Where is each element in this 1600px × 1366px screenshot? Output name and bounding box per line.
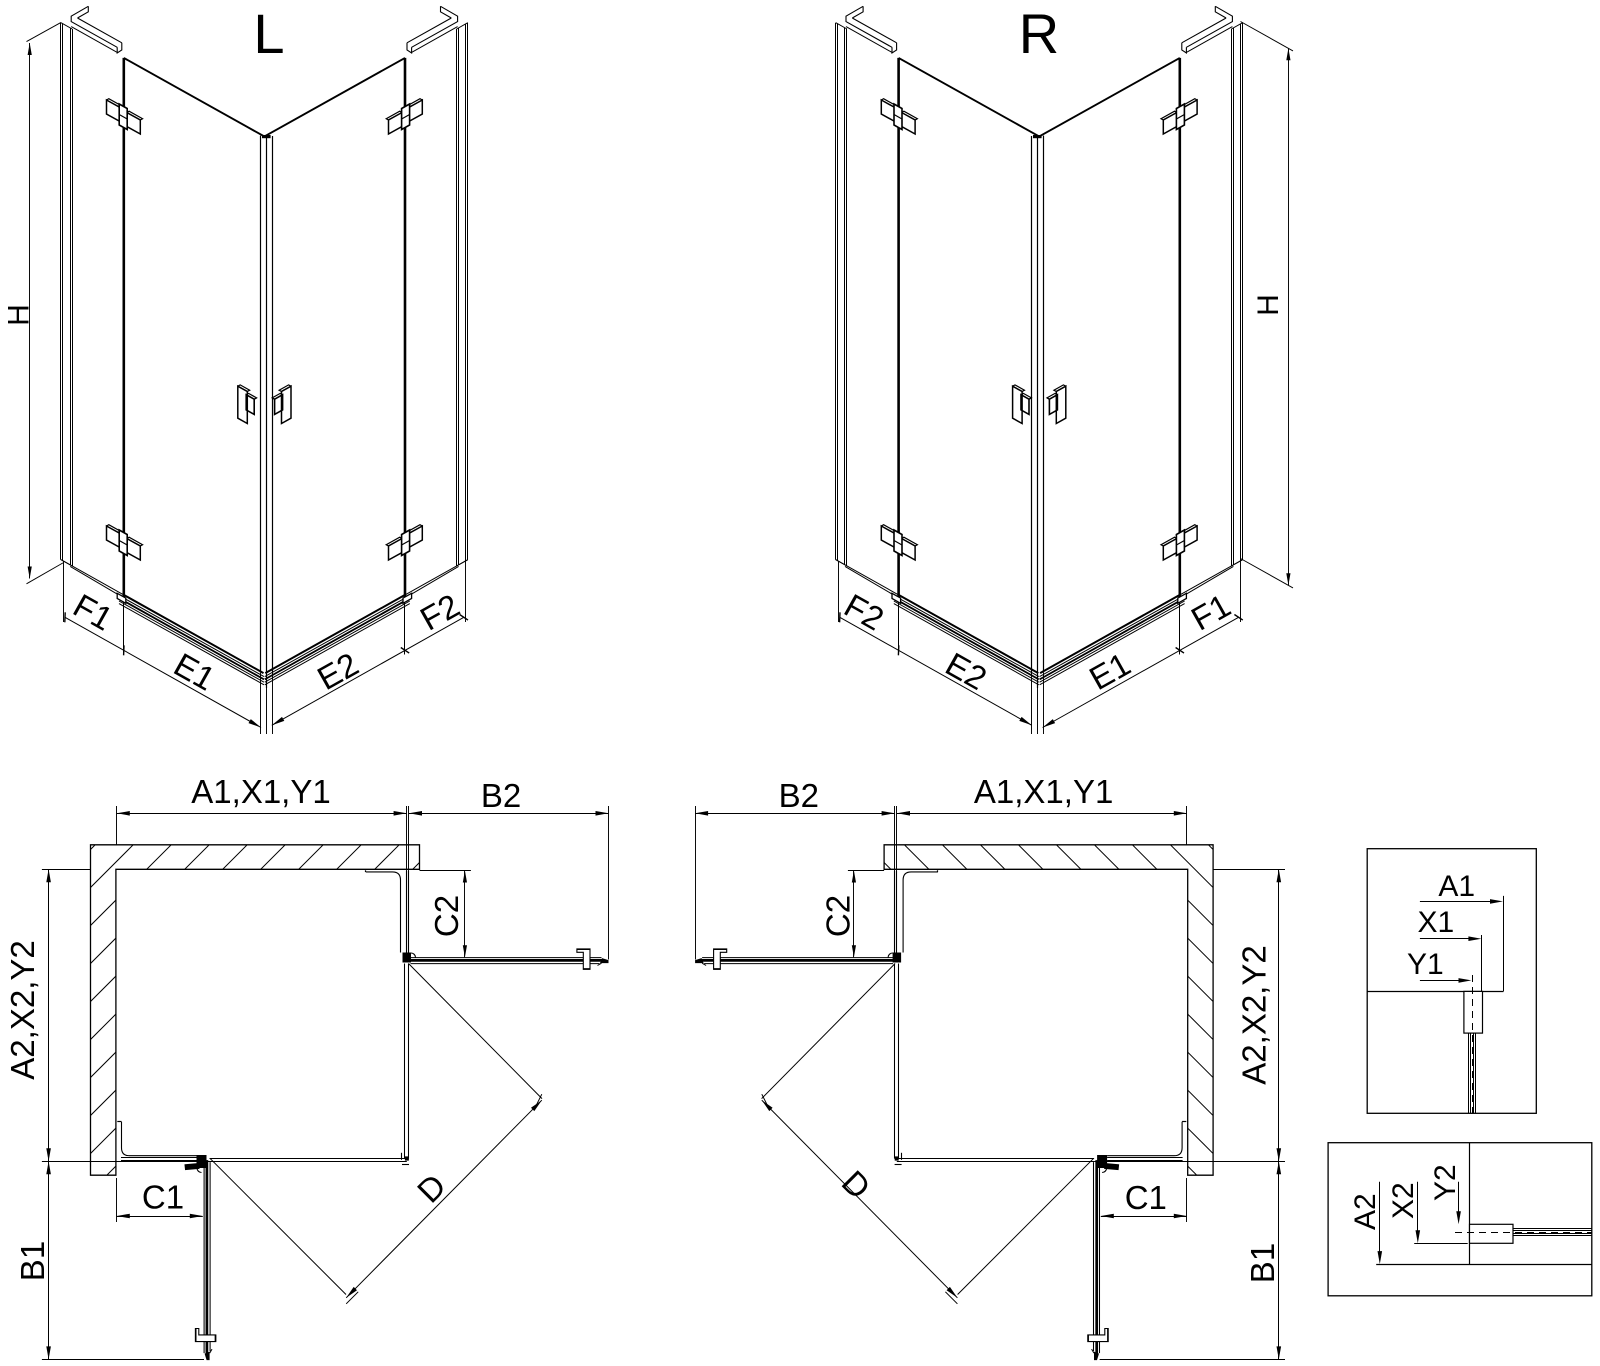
svg-text:A2,X2,Y2: A2,X2,Y2	[1236, 945, 1273, 1084]
svg-text:C2: C2	[820, 895, 857, 937]
svg-text:C1: C1	[142, 1179, 184, 1216]
svg-text:R: R	[1019, 2, 1059, 65]
svg-text:A2,X2,Y2: A2,X2,Y2	[4, 940, 41, 1079]
svg-text:B1: B1	[1244, 1243, 1281, 1283]
svg-text:A2: A2	[1349, 1193, 1382, 1230]
svg-text:C1: C1	[1125, 1179, 1167, 1216]
svg-text:L: L	[253, 2, 284, 65]
svg-text:H: H	[1252, 294, 1285, 316]
svg-text:B1: B1	[14, 1241, 51, 1281]
svg-text:B2: B2	[779, 777, 819, 814]
svg-text:X2: X2	[1387, 1182, 1420, 1219]
svg-text:Y2: Y2	[1429, 1164, 1462, 1201]
svg-text:H: H	[3, 304, 36, 326]
svg-text:A1: A1	[1438, 870, 1475, 903]
svg-text:C2: C2	[428, 895, 465, 937]
svg-text:A1,X1,Y1: A1,X1,Y1	[191, 773, 330, 810]
svg-text:X1: X1	[1417, 906, 1454, 939]
svg-text:B2: B2	[481, 777, 521, 814]
svg-text:Y1: Y1	[1407, 948, 1444, 981]
svg-text:A1,X1,Y1: A1,X1,Y1	[974, 773, 1113, 810]
